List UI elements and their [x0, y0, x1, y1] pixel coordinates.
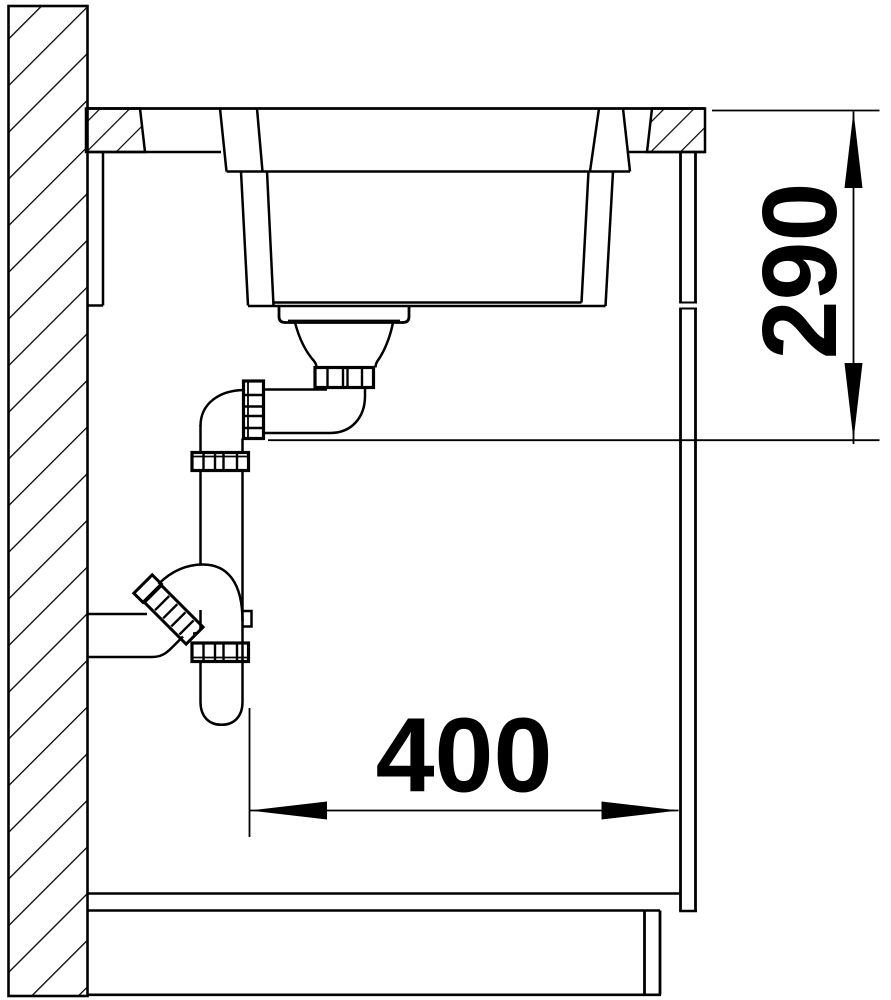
dim-290-arrow-down-icon	[845, 363, 863, 440]
wall-outlet-pipe	[88, 614, 184, 657]
sink-rim-left-inner	[257, 109, 263, 172]
back-rail	[88, 152, 104, 306]
sink-basin	[220, 109, 630, 307]
bowl-left-wall-outer	[241, 172, 248, 306]
dim-400-arrow-left-icon	[250, 802, 327, 820]
wall-pipe-bottom	[88, 637, 184, 658]
bowl-left-wall-inner	[267, 172, 274, 306]
basket-strainer	[279, 307, 409, 388]
cabinet	[88, 152, 698, 995]
wall-section	[9, 6, 88, 996]
elbow-outer-curve	[330, 388, 365, 434]
bowl-right-wall-inner	[582, 172, 589, 303]
drain-tailpipe-elbow	[201, 381, 366, 439]
sink-rim-right-outer	[623, 109, 630, 172]
sink-rim-left-outer	[220, 109, 227, 172]
strainer-nut	[315, 368, 374, 388]
dim-290-label: 290	[741, 183, 859, 360]
bowl-right-wall-outer	[606, 172, 614, 307]
technical-drawing-page: 290 400	[0, 0, 891, 1000]
trap-lower-nut	[192, 643, 249, 662]
sink-installation-diagram: 290 400	[0, 0, 891, 1000]
countertop-right-hatched-block	[647, 109, 705, 153]
down-elbow-outer-curve	[201, 390, 244, 426]
countertop	[86, 109, 705, 153]
cabinet-right-panel	[679, 152, 697, 911]
dim-290-arrow-up-icon	[845, 112, 863, 189]
plinth	[645, 911, 661, 995]
sink-rim-right-inner	[590, 109, 599, 172]
wall-hatched-body	[9, 6, 88, 996]
trap-u-bend	[201, 662, 243, 725]
drop-pipe-upper-nut	[192, 453, 249, 471]
dimension-290: 290	[268, 111, 880, 445]
trap-siphon	[134, 565, 252, 725]
strainer-funnel-right	[376, 323, 394, 368]
countertop-left-hatched-block	[86, 109, 145, 153]
dimension-400: 400	[250, 697, 679, 838]
dim-400-label: 400	[376, 697, 553, 815]
dim-400-arrow-right-icon	[602, 802, 679, 820]
horizontal-pipe-nut	[244, 381, 264, 439]
strainer-funnel-left	[295, 323, 317, 368]
trap-socket-tab	[243, 611, 252, 627]
